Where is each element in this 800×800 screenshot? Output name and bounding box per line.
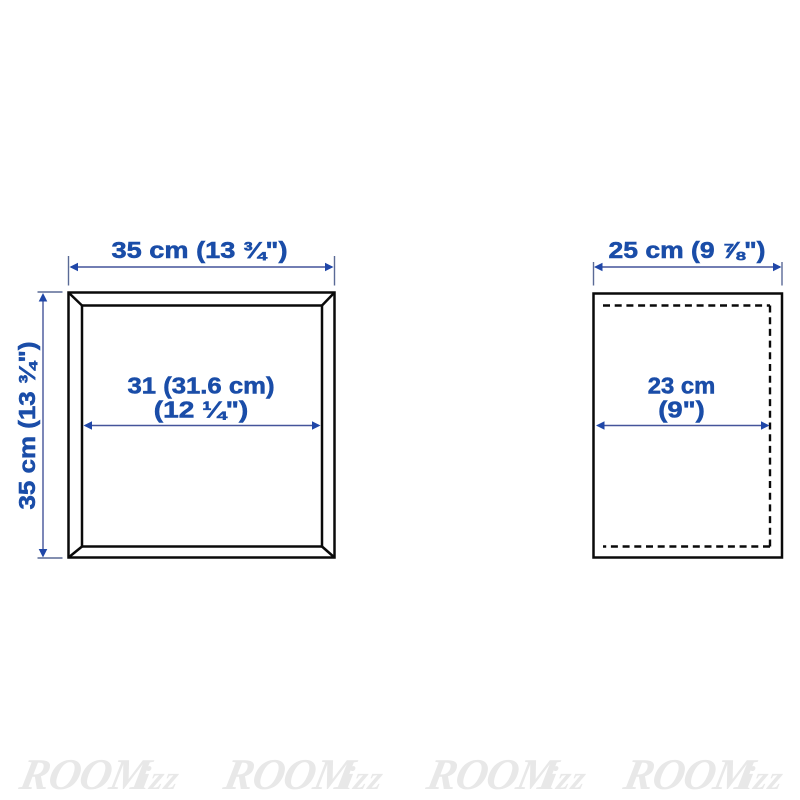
svg-text:ROOM: ROOM: [619, 749, 761, 798]
svg-text:(12 ¼"): (12 ¼"): [154, 397, 249, 423]
svg-text:35 cm (13 ¾"): 35 cm (13 ¾"): [112, 237, 288, 263]
svg-text:25 cm (9 ⅞"): 25 cm (9 ⅞"): [609, 237, 766, 263]
svg-text:izz: izz: [543, 760, 590, 797]
svg-text:ROOM: ROOM: [15, 749, 157, 798]
svg-text:izz: izz: [136, 760, 183, 797]
svg-text:ROOM: ROOM: [422, 749, 564, 798]
svg-text:(9"): (9"): [658, 397, 705, 423]
svg-text:23 cm: 23 cm: [648, 373, 716, 399]
svg-text:31 (31.6 cm): 31 (31.6 cm): [128, 373, 275, 399]
svg-text:izz: izz: [340, 760, 387, 797]
svg-text:35 cm (13 ¾"): 35 cm (13 ¾"): [14, 342, 40, 510]
svg-text:izz: izz: [740, 760, 787, 797]
svg-text:ROOM: ROOM: [219, 749, 361, 798]
